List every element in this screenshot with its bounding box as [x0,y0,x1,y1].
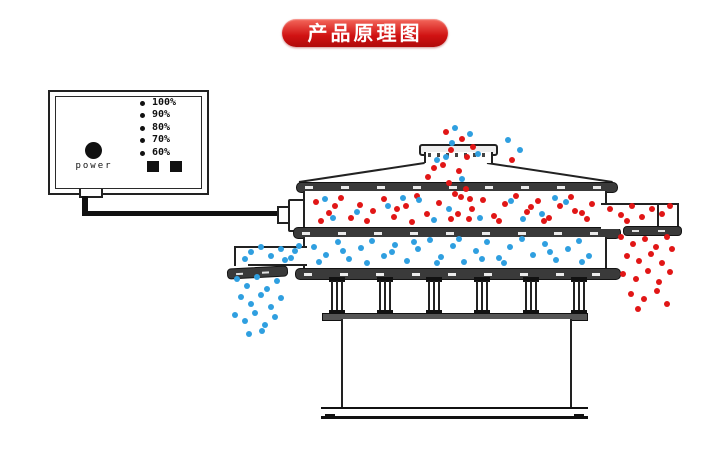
level-label: 70% [152,134,170,146]
inlet-stream-red-particle [459,136,465,142]
left-falling-blue-particle [242,318,248,324]
right-falling-red-particle [667,269,673,275]
level-bullet-icon [140,101,145,106]
title-badge: 产品原理图 [282,19,448,47]
base-foot [574,414,584,418]
feed-inlet-collar [424,152,493,163]
left-falling-blue-particle [272,314,278,320]
left-falling-blue-particle [244,283,250,289]
square-button-icon [147,161,159,172]
level-row-60: 60% [138,147,198,159]
ground-plate [321,407,588,419]
right-falling-red-particle [664,301,670,307]
right-falling-red-particle [641,296,647,302]
vibration-spring [571,277,587,315]
level-bullet-icon [140,126,145,131]
inlet-stream-blue-particle [467,131,473,137]
lid-cone-left-edge [299,162,425,183]
left-falling-blue-particle [264,286,270,292]
right-falling-red-particle [635,306,641,312]
left-falling-blue-particle [232,312,238,318]
fine-outlet-end-cap [227,265,288,279]
level-label: 90% [152,109,170,121]
inlet-stream-blue-particle [505,137,511,143]
motor-base-housing [341,319,572,408]
inlet-stream-red-particle [443,129,449,135]
right-falling-red-particle [628,291,634,297]
level-label: 60% [152,147,170,159]
right-falling-red-particle [630,241,636,247]
right-falling-red-particle [659,260,665,266]
left-falling-blue-particle [259,328,265,334]
right-falling-red-particle [624,253,630,259]
coarse-outlet-end-cap [623,226,682,236]
right-falling-red-particle [669,246,675,252]
upper-sieve-deck [303,191,607,227]
left-falling-blue-particle [238,294,244,300]
base-foot [325,414,335,418]
inlet-stream-red-particle [456,168,462,174]
left-falling-blue-particle [258,292,264,298]
left-falling-blue-particle [278,295,284,301]
right-falling-red-particle [642,236,648,242]
right-falling-red-particle [656,279,662,285]
inlet-stream-red-particle [425,174,431,180]
inlet-stream-red-particle [431,165,437,171]
right-falling-red-particle [633,276,639,282]
right-falling-red-particle [645,268,651,274]
level-label: 80% [152,122,170,134]
right-falling-red-particle [653,244,659,250]
right-falling-red-particle [648,251,654,257]
level-label: 100% [152,97,176,109]
fine-discharge-outlet [234,246,307,266]
level-row-100: 100% [138,97,198,109]
power-knob-icon [85,142,102,159]
level-row-70: 70% [138,134,198,146]
level-row-90: 90% [138,109,198,121]
right-falling-red-particle [654,288,660,294]
lower-sieve-deck [303,237,607,268]
inlet-stream-red-particle [509,157,515,163]
right-falling-red-particle [636,258,642,264]
level-bullet-icon [140,151,145,156]
vibration-spring [523,277,539,315]
inlet-stream-blue-particle [452,125,458,131]
lid-cone-right-edge [487,162,613,183]
square-button-icon [170,161,182,172]
power-cable-horizontal [82,211,278,216]
left-falling-blue-particle [274,278,280,284]
vibration-spring [474,277,490,315]
power-label: power [66,161,122,171]
left-falling-blue-particle [252,310,258,316]
left-falling-blue-particle [248,301,254,307]
left-falling-blue-particle [262,322,268,328]
left-falling-blue-particle [246,331,252,337]
vibration-spring [377,277,393,315]
inlet-stream-blue-particle [517,147,523,153]
left-falling-blue-particle [268,304,274,310]
level-row-80: 80% [138,122,198,134]
diagram-canvas: 产品原理图 power 100% 90% 80% 70% 60% [0,0,718,453]
level-bullet-icon [140,138,145,143]
vibration-spring [426,277,442,315]
vibration-spring [329,277,345,315]
level-bullet-icon [140,113,145,118]
